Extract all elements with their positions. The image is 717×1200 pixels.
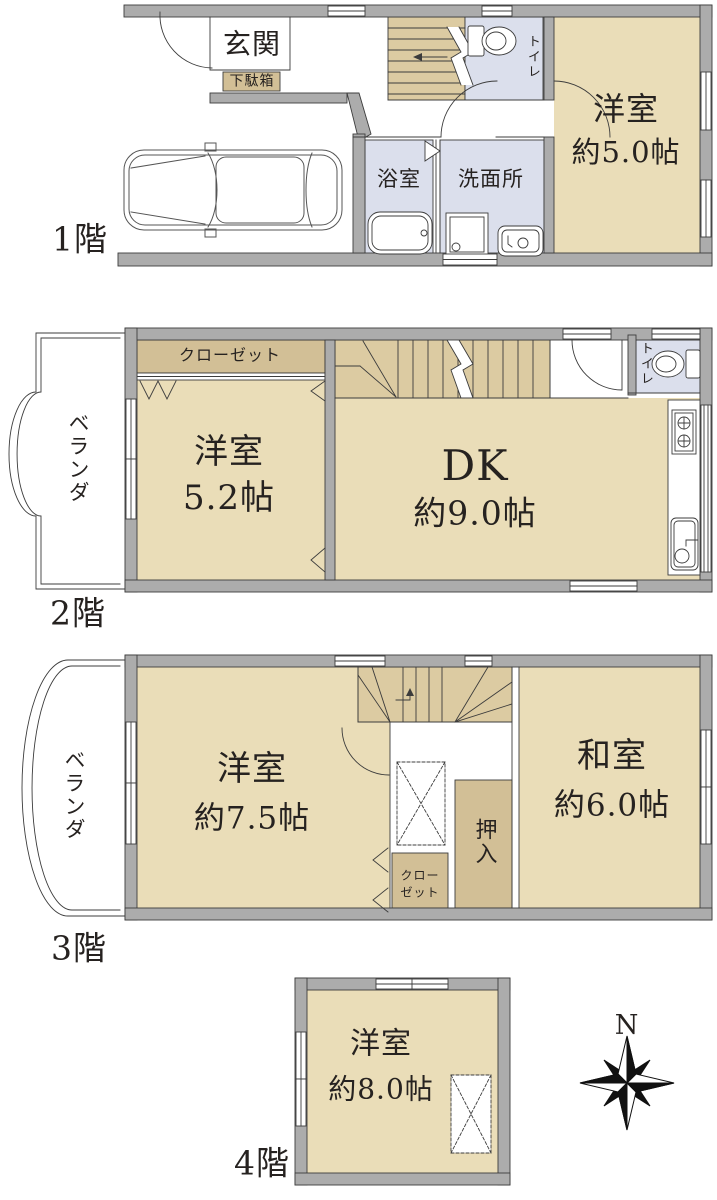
floor-plan-drawing [0,0,717,1200]
bathroom-label: 浴室 [377,168,421,190]
toilet-label-2f: トイレ [638,342,652,387]
japanese-room-label: 和室 [577,739,647,775]
western-room-label-2f: 洋室 [194,435,264,471]
floor3-label: 3階 [51,932,107,967]
floor-plan-page: 玄関 下駄箱 トイレ 浴室 洗面所 洋室 約5.0帖 1階 ベランダ クローゼッ… [0,0,717,1200]
closet-label-3f-line2: ゼット [400,887,439,900]
entrance-label: 玄関 [223,29,281,58]
toilet-icon-1f [468,26,516,56]
shoe-cabinet-label: 下駄箱 [230,75,275,90]
japanese-room-size: 約6.0帖 [554,790,670,823]
washroom-label: 洗面所 [458,168,524,190]
western-room-size-1f: 約5.0帖 [571,137,680,167]
floor4-label: 4階 [234,1147,290,1182]
kitchen-counter [668,400,700,575]
compass-rose-icon [580,1036,674,1130]
dk-room [335,398,700,580]
western-room-size-4f: 約8.0帖 [328,1074,434,1103]
stove-icon [672,410,696,454]
western-room-size-3f: 約7.5帖 [194,803,310,836]
veranda-label-3f: ベランダ [63,749,85,841]
western-room-label-1f: 洋室 [593,93,659,127]
hatch-opening-3f [397,762,445,845]
toilet-label-1f: トイレ [525,35,539,80]
western-room-label-4f: 洋室 [350,1028,412,1060]
oshiire-label: 押入 [472,818,495,866]
floor2-label: 2階 [50,597,106,632]
shower-pan-icon [446,213,488,256]
dk-size-label: 約9.0帖 [413,497,536,532]
floor2-plan [9,328,712,592]
washbasin-icon [498,226,543,256]
hatch-opening-4f [451,1075,491,1153]
dk-label: DK [441,444,508,488]
kitchen-sink-icon [671,518,698,570]
western-room-label-3f: 洋室 [217,752,287,788]
closet-label-2f: クローゼット [179,348,281,365]
closet-label-3f-line1: クロー [400,870,439,883]
floor1-label: 1階 [52,223,108,258]
veranda-label-2f: ベランダ [67,412,89,504]
western-room-size-2f: 5.2帖 [183,481,275,517]
bathtub-icon [368,212,432,254]
compass-north-label: N [615,1012,640,1040]
toilet-icon-2f [652,350,700,378]
